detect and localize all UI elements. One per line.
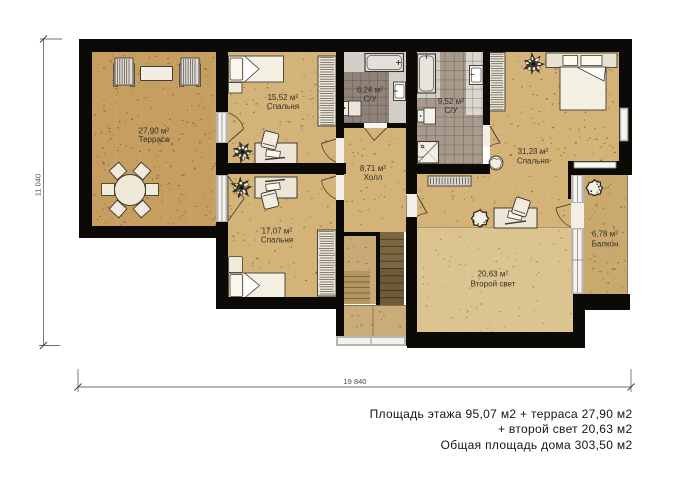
svg-text:Балкон: Балкон xyxy=(592,240,619,249)
svg-text:6,24 м2: 6,24 м2 xyxy=(357,86,383,95)
svg-text:20,63 м2: 20,63 м2 xyxy=(478,270,509,279)
svg-text:9,52 м2: 9,52 м2 xyxy=(438,97,464,106)
svg-text:Холл: Холл xyxy=(364,173,383,182)
svg-text:19 840: 19 840 xyxy=(344,377,367,386)
svg-text:Второй свет: Второй свет xyxy=(471,280,516,289)
svg-text:8,71 м2: 8,71 м2 xyxy=(360,164,386,173)
svg-text:Спальня: Спальня xyxy=(261,236,293,245)
svg-text:11 040: 11 040 xyxy=(34,174,43,196)
svg-text:С/У: С/У xyxy=(363,95,377,104)
svg-text:Терраса: Терраса xyxy=(139,135,170,144)
svg-text:С/У: С/У xyxy=(444,106,458,115)
svg-text:31,23 м2: 31,23 м2 xyxy=(518,147,549,156)
svg-text:17,07 м2: 17,07 м2 xyxy=(262,227,293,236)
svg-text:Спальня: Спальня xyxy=(267,102,299,111)
svg-text:6,78 м2: 6,78 м2 xyxy=(592,230,618,239)
svg-text:Спальня: Спальня xyxy=(517,157,549,166)
svg-text:15,52 м2: 15,52 м2 xyxy=(268,93,299,102)
